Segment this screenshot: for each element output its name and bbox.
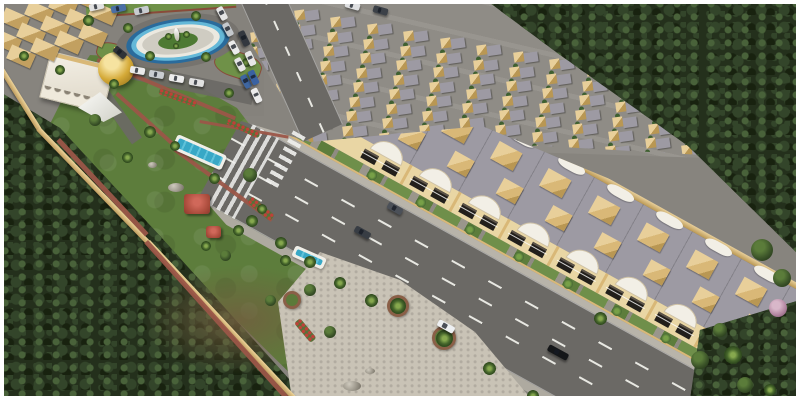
- grid-house-stair-box: [509, 66, 520, 77]
- palm-planter: [283, 291, 301, 309]
- car-windshield: [116, 49, 122, 55]
- grid-house: [535, 114, 561, 131]
- grid-house-roof: [377, 23, 392, 35]
- car-windshield: [153, 72, 158, 78]
- palm-tree: [334, 277, 346, 289]
- grid-house-stair-box: [327, 31, 338, 42]
- grid-house-stair-box: [645, 137, 656, 148]
- grid-house-roof: [359, 96, 374, 108]
- grid-house-stair-box: [462, 102, 473, 113]
- car-windshield: [230, 44, 236, 49]
- grid-house-stair-box: [386, 103, 397, 114]
- grid-house-roof: [373, 38, 388, 50]
- car-windshield: [242, 78, 248, 83]
- car-windshield: [93, 4, 98, 10]
- grid-house-stair-box: [572, 123, 583, 134]
- grid-house: [330, 14, 356, 31]
- aerial-render-frame: [0, 0, 800, 400]
- grid-house-stair-box: [612, 116, 623, 127]
- roof-stair-box: [643, 259, 671, 285]
- roof-stair-box: [539, 168, 571, 198]
- grid-house-roof: [582, 123, 597, 135]
- grid-house-roof: [340, 16, 355, 28]
- green-tree: [737, 377, 753, 393]
- grid-house-stair-box: [396, 59, 407, 70]
- grid-house-roof: [476, 88, 491, 100]
- landscape-rock: [343, 381, 361, 391]
- roof-stair-box: [588, 195, 620, 225]
- grid-house-stair-box: [382, 117, 393, 128]
- grid-house-roof: [406, 59, 421, 71]
- grid-house: [323, 43, 349, 60]
- grid-house-stair-box: [549, 58, 560, 69]
- grid-house-roof: [509, 109, 524, 121]
- grid-house: [542, 85, 568, 102]
- grid-house-stair-box: [346, 110, 357, 121]
- grid-house: [476, 42, 502, 59]
- grid-house-stair-box: [393, 74, 404, 85]
- grid-house: [346, 108, 372, 125]
- grid-house-roof: [512, 95, 527, 107]
- grid-house-roof: [450, 37, 465, 49]
- grid-house-stair-box: [353, 81, 364, 92]
- grid-house-stair-box: [426, 95, 437, 106]
- palm-tree: [122, 152, 133, 163]
- grid-house-stair-box: [320, 60, 331, 71]
- grid-house-roof: [479, 73, 494, 85]
- grid-house: [367, 21, 393, 38]
- grid-house-stair-box: [575, 109, 586, 120]
- palm-tree: [764, 384, 776, 396]
- grid-house: [506, 78, 532, 95]
- grid-house-roof: [446, 52, 461, 64]
- grid-house-stair-box: [323, 45, 334, 56]
- grid-house-stair-box: [403, 30, 414, 41]
- grid-house-roof: [366, 67, 381, 79]
- palm-tree: [145, 51, 155, 61]
- grid-house-stair-box: [400, 45, 411, 56]
- grid-house-stair-box: [389, 88, 400, 99]
- grid-house: [360, 50, 386, 67]
- green-tree: [304, 284, 316, 296]
- grid-house-roof: [545, 116, 560, 128]
- grid-house-stair-box: [349, 96, 360, 107]
- grid-house-roof: [622, 116, 637, 128]
- roof-stair-box: [447, 151, 475, 177]
- grid-house-roof: [589, 94, 604, 106]
- grid-house: [433, 64, 459, 81]
- grid-house-roof: [304, 9, 319, 21]
- grid-house-stair-box: [579, 94, 590, 105]
- grid-house: [499, 107, 525, 124]
- landscape-rock: [365, 368, 375, 374]
- grid-house-roof: [578, 138, 593, 150]
- grid-house-roof: [413, 30, 428, 42]
- car-windshield: [138, 8, 143, 14]
- landscape-rock: [168, 183, 184, 192]
- car-windshield: [173, 76, 178, 82]
- grid-house-roof: [542, 131, 557, 143]
- grid-house-stair-box: [360, 52, 371, 63]
- grid-house-roof: [519, 66, 534, 78]
- grid-house: [469, 71, 495, 88]
- grid-house-roof: [410, 45, 425, 57]
- grid-house-roof: [370, 52, 385, 64]
- car-windshield: [348, 4, 353, 8]
- pink-flowering-tree: [769, 299, 787, 317]
- grid-house: [513, 49, 539, 66]
- grid-house-roof: [337, 31, 352, 43]
- car-windshield: [391, 205, 397, 211]
- car-windshield: [553, 348, 560, 355]
- grid-house-stair-box: [422, 110, 433, 121]
- grid-house-stair-box: [608, 130, 619, 141]
- palm-tree: [165, 33, 172, 40]
- green-tree: [713, 323, 727, 337]
- grid-house-roof: [585, 109, 600, 121]
- grid-house-roof: [483, 59, 498, 71]
- grid-house: [426, 93, 452, 110]
- car-windshield: [115, 6, 120, 12]
- grid-house-stair-box: [542, 87, 553, 98]
- palm-tree: [191, 11, 201, 21]
- township-aerial-scene: [4, 4, 796, 396]
- grid-house: [440, 35, 466, 52]
- gazebo-red-roof: [184, 194, 210, 214]
- roof-stair-box: [496, 178, 524, 204]
- grid-house-roof: [556, 73, 571, 85]
- palm-tree: [275, 237, 287, 249]
- grid-house-roof: [436, 95, 451, 107]
- grid-house-roof: [352, 125, 367, 137]
- grid-house: [382, 115, 408, 132]
- grid-house-stair-box: [499, 109, 510, 120]
- grid-house-stair-box: [615, 101, 626, 112]
- grid-house-stair-box: [476, 44, 487, 55]
- car-windshield: [236, 61, 242, 66]
- grid-house-roof: [439, 81, 454, 93]
- palm-tree: [123, 23, 133, 33]
- roof-stair-box: [692, 286, 720, 312]
- grid-house-stair-box: [473, 59, 484, 70]
- grid-house-roof: [505, 124, 520, 136]
- grid-house-roof: [523, 51, 538, 63]
- palm-tree: [483, 362, 496, 375]
- green-tree: [89, 114, 101, 126]
- grid-house-roof: [403, 74, 418, 86]
- grid-house-stair-box: [506, 80, 517, 91]
- grid-house-roof: [443, 66, 458, 78]
- grid-house-stair-box: [356, 67, 367, 78]
- green-tree: [243, 168, 257, 182]
- palm-tree: [109, 79, 119, 89]
- grid-house-roof: [363, 81, 378, 93]
- roof-stair-box: [637, 222, 669, 252]
- palm-tree: [55, 65, 65, 75]
- grid-house-stair-box: [535, 116, 546, 127]
- grid-house-stair-box: [433, 66, 444, 77]
- grid-house-stair-box: [502, 95, 513, 106]
- grid-house-stair-box: [367, 23, 378, 34]
- render-world: [4, 4, 796, 396]
- grid-house-roof: [618, 130, 633, 142]
- grid-house-roof: [549, 102, 564, 114]
- green-tree: [265, 295, 276, 306]
- grid-house-roof: [552, 87, 567, 99]
- grid-house-stair-box: [546, 73, 557, 84]
- gazebo-red-roof: [206, 226, 221, 238]
- grid-house-stair-box: [469, 73, 480, 84]
- green-tree: [324, 326, 336, 338]
- grid-house-stair-box: [539, 102, 550, 113]
- grid-house: [572, 121, 598, 138]
- grid-house-roof: [399, 88, 414, 100]
- palm-tree: [257, 204, 267, 214]
- palm-tree: [19, 51, 29, 61]
- car-windshield: [224, 26, 230, 31]
- car-windshield: [442, 323, 448, 330]
- grid-house: [396, 57, 422, 74]
- palm-tree: [144, 126, 156, 138]
- green-tree: [751, 239, 773, 261]
- grid-house-roof: [356, 110, 371, 122]
- grid-house-stair-box: [363, 38, 374, 49]
- palm-tree: [173, 43, 179, 49]
- car-windshield: [193, 80, 198, 86]
- grid-house-roof: [392, 117, 407, 129]
- grid-house-stair-box: [582, 80, 593, 91]
- grid-house-stair-box: [648, 123, 659, 134]
- grid-house-roof: [486, 44, 501, 56]
- roof-stair-box: [735, 277, 767, 307]
- roof-stair-box: [545, 205, 573, 231]
- palm-tree: [233, 225, 244, 236]
- palm-tree: [304, 256, 316, 268]
- palm-tree: [201, 241, 211, 251]
- grid-house-stair-box: [436, 52, 447, 63]
- grid-house-stair-box: [513, 51, 524, 62]
- palm-tree: [365, 294, 378, 307]
- grid-house: [608, 128, 634, 145]
- grid-house-roof: [396, 103, 411, 115]
- palm-tree: [83, 15, 94, 26]
- palm-tree: [594, 312, 607, 325]
- palm-tree: [183, 31, 190, 38]
- roof-stair-box: [594, 232, 622, 258]
- palm-tree: [527, 390, 539, 396]
- grid-house-stair-box: [532, 131, 543, 142]
- grid-house: [389, 86, 415, 103]
- roof-stair-box: [686, 250, 718, 280]
- green-tree: [220, 250, 231, 261]
- landscape-rock: [148, 162, 157, 168]
- car-windshield: [252, 92, 258, 98]
- grid-house-stair-box: [330, 16, 341, 27]
- palm-tree: [201, 52, 211, 62]
- palm-tree: [280, 255, 291, 266]
- palm-tree: [390, 298, 406, 314]
- grid-house-roof: [330, 60, 345, 72]
- car-windshield: [246, 55, 252, 61]
- palm-tree: [224, 88, 234, 98]
- green-tree: [691, 351, 709, 369]
- car-windshield: [218, 10, 224, 15]
- car-windshield: [240, 35, 246, 41]
- grid-house-roof: [333, 45, 348, 57]
- grid-house-stair-box: [429, 81, 440, 92]
- car-windshield: [358, 229, 364, 235]
- car-windshield: [249, 74, 255, 80]
- palm-tree: [170, 141, 180, 151]
- palm-tree: [209, 173, 220, 184]
- car-windshield: [376, 7, 381, 13]
- grid-house-roof: [432, 110, 447, 122]
- grid-house-stair-box: [459, 117, 470, 128]
- roof-stair-box: [490, 141, 522, 171]
- grid-house-stair-box: [342, 125, 353, 136]
- grid-house-roof: [326, 74, 341, 86]
- car-windshield: [134, 68, 139, 74]
- grid-house: [645, 135, 671, 152]
- grid-house-roof: [472, 102, 487, 114]
- grid-house-roof: [655, 137, 670, 149]
- grid-house: [403, 28, 429, 45]
- grid-house: [579, 92, 605, 109]
- green-tree: [773, 269, 791, 287]
- palm-tree: [724, 346, 742, 364]
- grid-house: [462, 100, 488, 117]
- grid-house-stair-box: [466, 88, 477, 99]
- palm-tree: [246, 215, 258, 227]
- grid-house: [353, 79, 379, 96]
- grid-house-roof: [516, 80, 531, 92]
- grid-house-stair-box: [440, 37, 451, 48]
